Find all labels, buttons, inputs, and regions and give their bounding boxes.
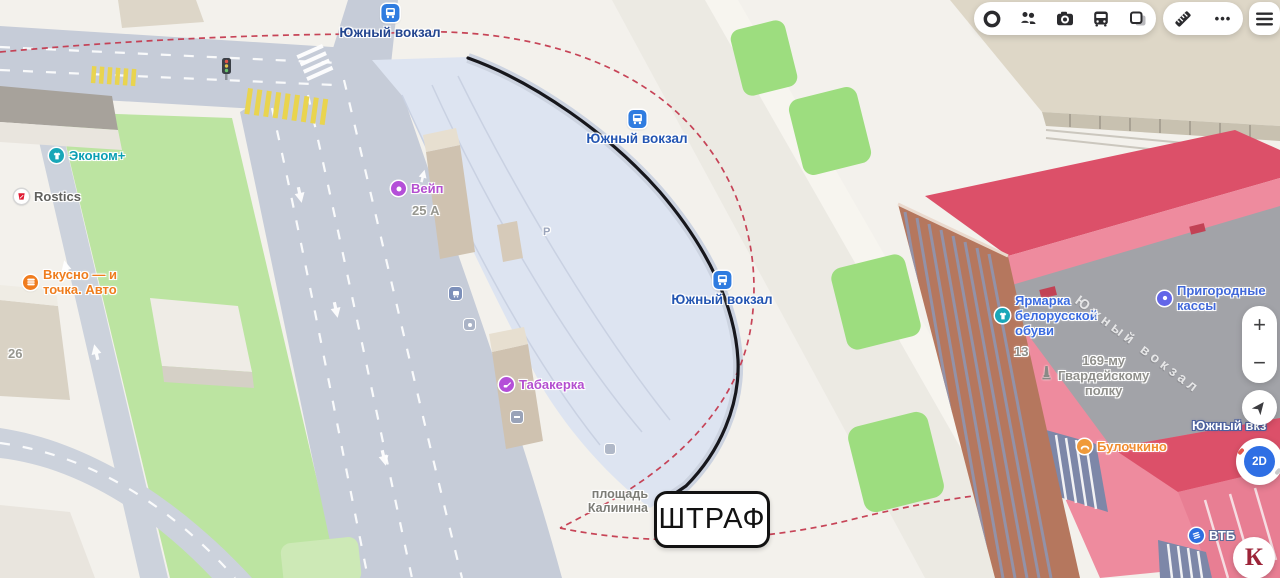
- monument-icon: [1040, 365, 1053, 386]
- ticket-office-icon: [1157, 291, 1172, 306]
- clothes-shop-icon: [49, 148, 64, 163]
- burger-icon: [23, 275, 38, 290]
- locate-me-button[interactable]: [1242, 390, 1277, 425]
- poi-ekonom[interactable]: Эконом+: [49, 148, 125, 163]
- zoom-out-button[interactable]: −: [1242, 344, 1277, 382]
- minor-bus-stop-icon[interactable]: [449, 287, 462, 300]
- penalty-callout[interactable]: ШТРАФ: [654, 491, 770, 548]
- poi-label: ВТБ: [1209, 528, 1235, 543]
- stop-label: Южный вокзал: [339, 25, 440, 40]
- bus-stop-icon: [381, 4, 399, 22]
- minor-poi-icon[interactable]: [511, 411, 523, 423]
- rostics-bucket-icon: [14, 189, 29, 204]
- house-number-26: 26: [8, 346, 22, 361]
- tram-stop-icon: [713, 271, 731, 289]
- compass-2d-button[interactable]: 2D: [1236, 438, 1280, 485]
- stop-label: Южный вокзал: [586, 131, 687, 146]
- poi-rostics[interactable]: Rostics: [14, 189, 81, 204]
- clothes-shop-icon: [995, 308, 1010, 323]
- minor-poi-icon[interactable]: [464, 319, 475, 330]
- toolbar-layers-pill: [974, 2, 1156, 35]
- zoom-control: + −: [1242, 306, 1277, 383]
- poi-label: Табакерка: [519, 377, 585, 392]
- poi-label: Булочкино: [1097, 439, 1167, 454]
- panorama-layers-icon[interactable]: [1127, 8, 1149, 30]
- compass-north-needle: [1237, 448, 1245, 456]
- poi-label: Вейп: [411, 181, 443, 196]
- house-number-13: 13: [1014, 344, 1028, 359]
- more-dots-icon[interactable]: •••: [1212, 8, 1234, 30]
- compass-south-needle: [1274, 468, 1280, 476]
- zoom-in-button[interactable]: +: [1242, 306, 1277, 344]
- stop-label: Южный вокзал: [671, 292, 772, 307]
- map-stage[interactable]: Южный вокзал Южный вокзал Южный вокзал Э…: [0, 0, 1280, 578]
- transit-stop-yuzhny-vokzal-1[interactable]: Южный вокзал: [339, 4, 440, 40]
- tobacco-shop-icon: [499, 377, 514, 392]
- poi-label: Rostics: [34, 189, 81, 204]
- poi-veip[interactable]: Вейп: [391, 181, 443, 196]
- friends-icon[interactable]: [1018, 8, 1040, 30]
- bus-transport-icon[interactable]: [1090, 8, 1112, 30]
- poi-bulochkino[interactable]: Булочкино: [1077, 439, 1167, 454]
- poi-vtb[interactable]: ВТБ: [1189, 528, 1235, 543]
- vape-shop-icon: [391, 181, 406, 196]
- k-logo[interactable]: К: [1233, 537, 1275, 578]
- camera-icon[interactable]: [1054, 8, 1076, 30]
- menu-hamburger-button[interactable]: [1249, 2, 1280, 35]
- mode-2d-badge: 2D: [1244, 446, 1275, 477]
- toolbar-tools-pill: •••: [1163, 2, 1243, 35]
- minor-poi-icon[interactable]: [605, 444, 615, 454]
- transit-stop-yuzhny-vokzal-2[interactable]: Южный вокзал: [586, 110, 687, 146]
- poi-label: Вкусно — и точка. Авто: [43, 267, 117, 297]
- poi-label: Эконом+: [69, 148, 125, 163]
- square-kalinina-label: площадь Калинина: [575, 487, 648, 515]
- poi-vkusno-i-tochka[interactable]: Вкусно — и точка. Авто: [23, 267, 117, 297]
- ruler-icon[interactable]: [1172, 8, 1194, 30]
- bakery-icon: [1077, 439, 1092, 454]
- poi-gvardeyskomu-polku[interactable]: 169-му Гвардейскому полку: [1040, 353, 1149, 398]
- poi-tabakerka[interactable]: Табакерка: [499, 377, 585, 392]
- transit-stop-yuzhny-vokzal-3[interactable]: Южный вокзал: [671, 271, 772, 307]
- bus-stop-icon: [628, 110, 646, 128]
- poi-label: 169-му Гвардейскому полку: [1058, 353, 1149, 398]
- house-number-25a: 25 А: [412, 203, 439, 218]
- vtb-bank-icon: [1189, 528, 1204, 543]
- traffic-ring-icon[interactable]: [981, 8, 1003, 30]
- navigation-arrow-icon: [1251, 399, 1268, 416]
- parking-label: Р: [543, 226, 550, 238]
